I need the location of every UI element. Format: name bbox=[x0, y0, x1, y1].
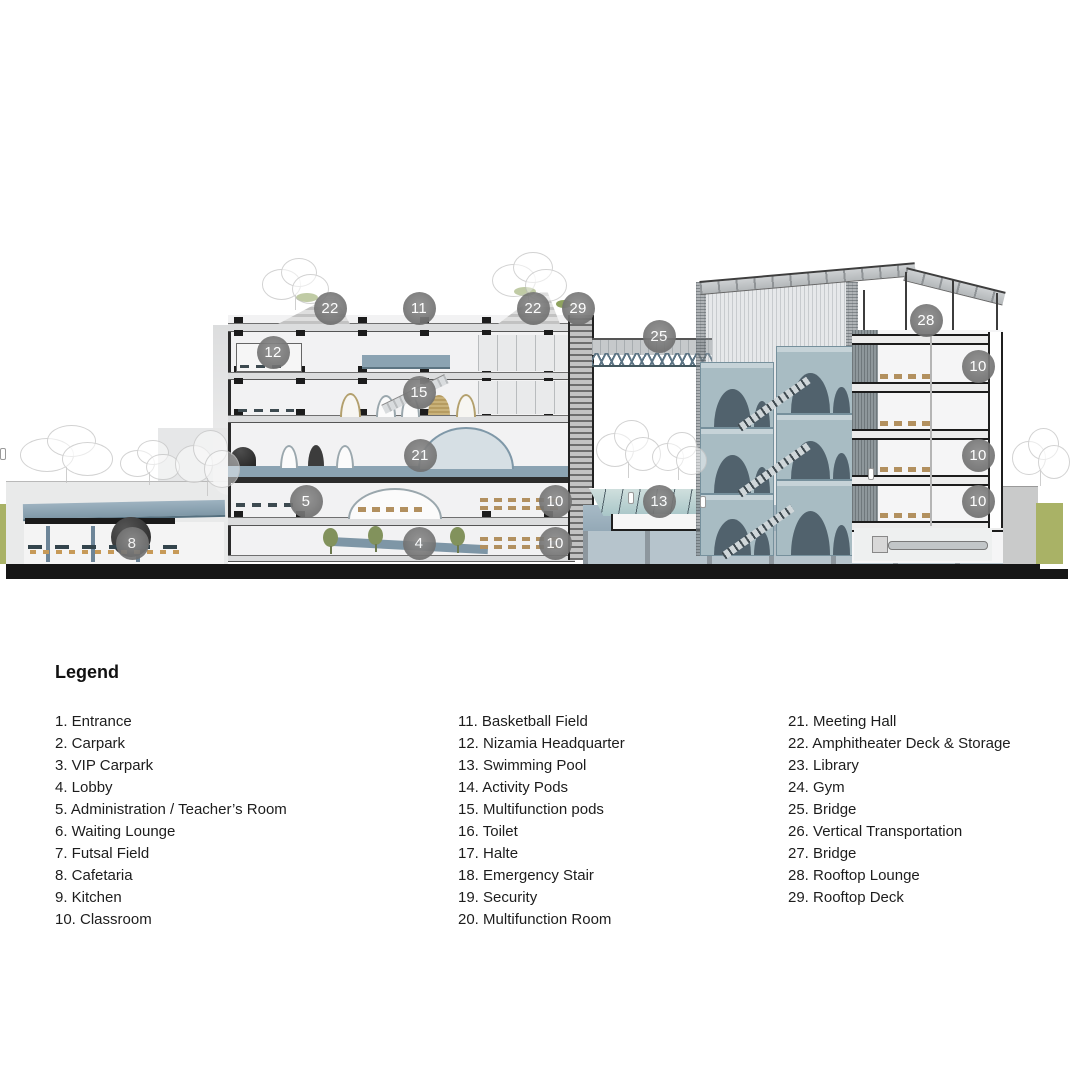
legend-item-11: 11. Basketball Field bbox=[458, 711, 625, 733]
section-marker-8: 8 bbox=[116, 527, 149, 560]
classroom-desks bbox=[880, 421, 932, 426]
section-marker-15: 15 bbox=[403, 376, 436, 409]
section-marker-28: 28 bbox=[910, 304, 943, 337]
legend-item-16: 16. Toilet bbox=[458, 821, 625, 843]
section-marker-5: 5 bbox=[290, 485, 323, 518]
canopy-post bbox=[905, 272, 907, 336]
activity-pods-cluster bbox=[696, 282, 858, 556]
classroom-desks bbox=[880, 374, 932, 379]
legend-item-4: 4. Lobby bbox=[55, 777, 287, 799]
section-marker-11: 11 bbox=[403, 292, 436, 325]
section-marker-21: 21 bbox=[404, 439, 437, 472]
legend-item-14: 14. Activity Pods bbox=[458, 777, 625, 799]
cafeteria-column bbox=[46, 526, 50, 562]
section-marker-25: 25 bbox=[643, 320, 676, 353]
ground-green-right bbox=[1036, 503, 1063, 564]
legend-item-8: 8. Cafetaria bbox=[55, 865, 287, 887]
pod-arch bbox=[340, 393, 361, 417]
legend-item-28: 28. Rooftop Lounge bbox=[788, 865, 1011, 887]
meeting-hall-floor-structure bbox=[228, 477, 575, 483]
legend-item-23: 23. Library bbox=[788, 755, 1011, 777]
tree-sketch bbox=[652, 432, 707, 480]
classroom-desks bbox=[880, 467, 932, 472]
tree-trunk bbox=[457, 545, 459, 553]
lobby-tree bbox=[368, 526, 383, 545]
classroom-desks bbox=[880, 513, 932, 518]
legend-item-3: 3. VIP Carpark bbox=[55, 755, 287, 777]
legend-item-20: 20. Multifunction Room bbox=[458, 909, 625, 931]
legend-item-26: 26. Vertical Transportation bbox=[788, 821, 1011, 843]
canopy-post bbox=[952, 280, 954, 336]
section-marker-10: 10 bbox=[539, 485, 572, 518]
interior-wall bbox=[930, 336, 932, 526]
tree-sketch bbox=[1012, 428, 1070, 486]
section-marker-22: 22 bbox=[314, 292, 347, 325]
ground-line bbox=[6, 564, 1040, 579]
activity-pod bbox=[776, 346, 854, 414]
window-band bbox=[478, 381, 568, 414]
office-desks bbox=[238, 409, 294, 412]
cafeteria-tables bbox=[28, 545, 180, 549]
legend-column-1: 1. Entrance2. Carpark3. VIP Carpark4. Lo… bbox=[55, 711, 287, 931]
legend-column-2: 11. Basketball Field12. Nizamia Headquar… bbox=[458, 711, 625, 931]
tree-trunk bbox=[375, 544, 377, 552]
legend-item-29: 29. Rooftop Deck bbox=[788, 887, 1011, 909]
basketball-mezzanine bbox=[362, 355, 450, 369]
legend-item-18: 18. Emergency Stair bbox=[458, 865, 625, 887]
activity-pod bbox=[700, 362, 774, 428]
legend-item-7: 7. Futsal Field bbox=[55, 843, 287, 865]
service-unit bbox=[872, 536, 888, 553]
person-figure bbox=[700, 496, 706, 508]
person-figure bbox=[0, 448, 6, 460]
legend-title: Legend bbox=[55, 662, 119, 683]
tree-trunk bbox=[330, 546, 332, 554]
ground-line-step bbox=[1038, 569, 1068, 579]
legend-item-22: 22. Amphitheater Deck & Storage bbox=[788, 733, 1011, 755]
tree-sketch bbox=[20, 425, 115, 483]
legend-item-9: 9. Kitchen bbox=[55, 887, 287, 909]
activity-pod bbox=[776, 414, 854, 480]
hall-arch bbox=[280, 445, 298, 468]
window-band bbox=[478, 335, 568, 371]
activity-pod bbox=[776, 480, 854, 556]
bridge-truss bbox=[592, 353, 712, 367]
legend-item-12: 12. Nizamia Headquarter bbox=[458, 733, 625, 755]
lobby-tree bbox=[323, 528, 338, 547]
meeting-room-arch bbox=[348, 488, 442, 519]
section-marker-10: 10 bbox=[962, 350, 995, 383]
section-marker-4: 4 bbox=[403, 527, 436, 560]
admin-desks bbox=[236, 503, 294, 507]
legend-item-10: 10. Classroom bbox=[55, 909, 287, 931]
section-marker-13: 13 bbox=[643, 485, 676, 518]
legend-item-1: 1. Entrance bbox=[55, 711, 287, 733]
hall-arch bbox=[336, 445, 354, 468]
section-marker-10: 10 bbox=[962, 485, 995, 518]
legend-item-5: 5. Administration / Teacher’s Room bbox=[55, 799, 287, 821]
section-marker-22: 22 bbox=[517, 292, 550, 325]
legend-item-19: 19. Security bbox=[458, 887, 625, 909]
legend-column-3: 21. Meeting Hall22. Amphitheater Deck & … bbox=[788, 711, 1011, 909]
tree-sketch bbox=[120, 440, 180, 485]
hall-doorway bbox=[308, 445, 324, 466]
person-figure bbox=[868, 468, 874, 480]
service-pipe bbox=[888, 541, 988, 550]
floor-slab bbox=[852, 382, 1003, 393]
legend-item-21: 21. Meeting Hall bbox=[788, 711, 1011, 733]
legend-item-25: 25. Bridge bbox=[788, 799, 1011, 821]
legend-item-6: 6. Waiting Lounge bbox=[55, 821, 287, 843]
meeting-tables bbox=[358, 507, 424, 512]
legend-item-24: 24. Gym bbox=[788, 777, 1011, 799]
section-marker-10: 10 bbox=[539, 527, 572, 560]
legend-item-27: 27. Bridge bbox=[788, 843, 1011, 865]
person-figure bbox=[628, 492, 634, 504]
cafeteria-roof-beam bbox=[25, 518, 175, 524]
legend-item-2: 2. Carpark bbox=[55, 733, 287, 755]
tree-sketch bbox=[175, 430, 241, 496]
ground-slab bbox=[228, 555, 575, 562]
cafeteria-column bbox=[91, 526, 95, 562]
section-marker-12: 12 bbox=[257, 336, 290, 369]
cafeteria-chairs bbox=[30, 550, 180, 554]
poster-canvas: 221122292528121015211051013108410 Legend… bbox=[0, 0, 1080, 1080]
legend-item-13: 13. Swimming Pool bbox=[458, 755, 625, 777]
canopy-roof-right-slope bbox=[903, 267, 1005, 305]
section-marker-29: 29 bbox=[562, 292, 595, 325]
section-marker-10: 10 bbox=[962, 439, 995, 472]
legend-item-17: 17. Halte bbox=[458, 843, 625, 865]
pod-arch bbox=[456, 394, 476, 417]
legend-item-15: 15. Multifunction pods bbox=[458, 799, 625, 821]
activity-pod bbox=[700, 428, 774, 494]
lobby-tree bbox=[450, 527, 465, 546]
